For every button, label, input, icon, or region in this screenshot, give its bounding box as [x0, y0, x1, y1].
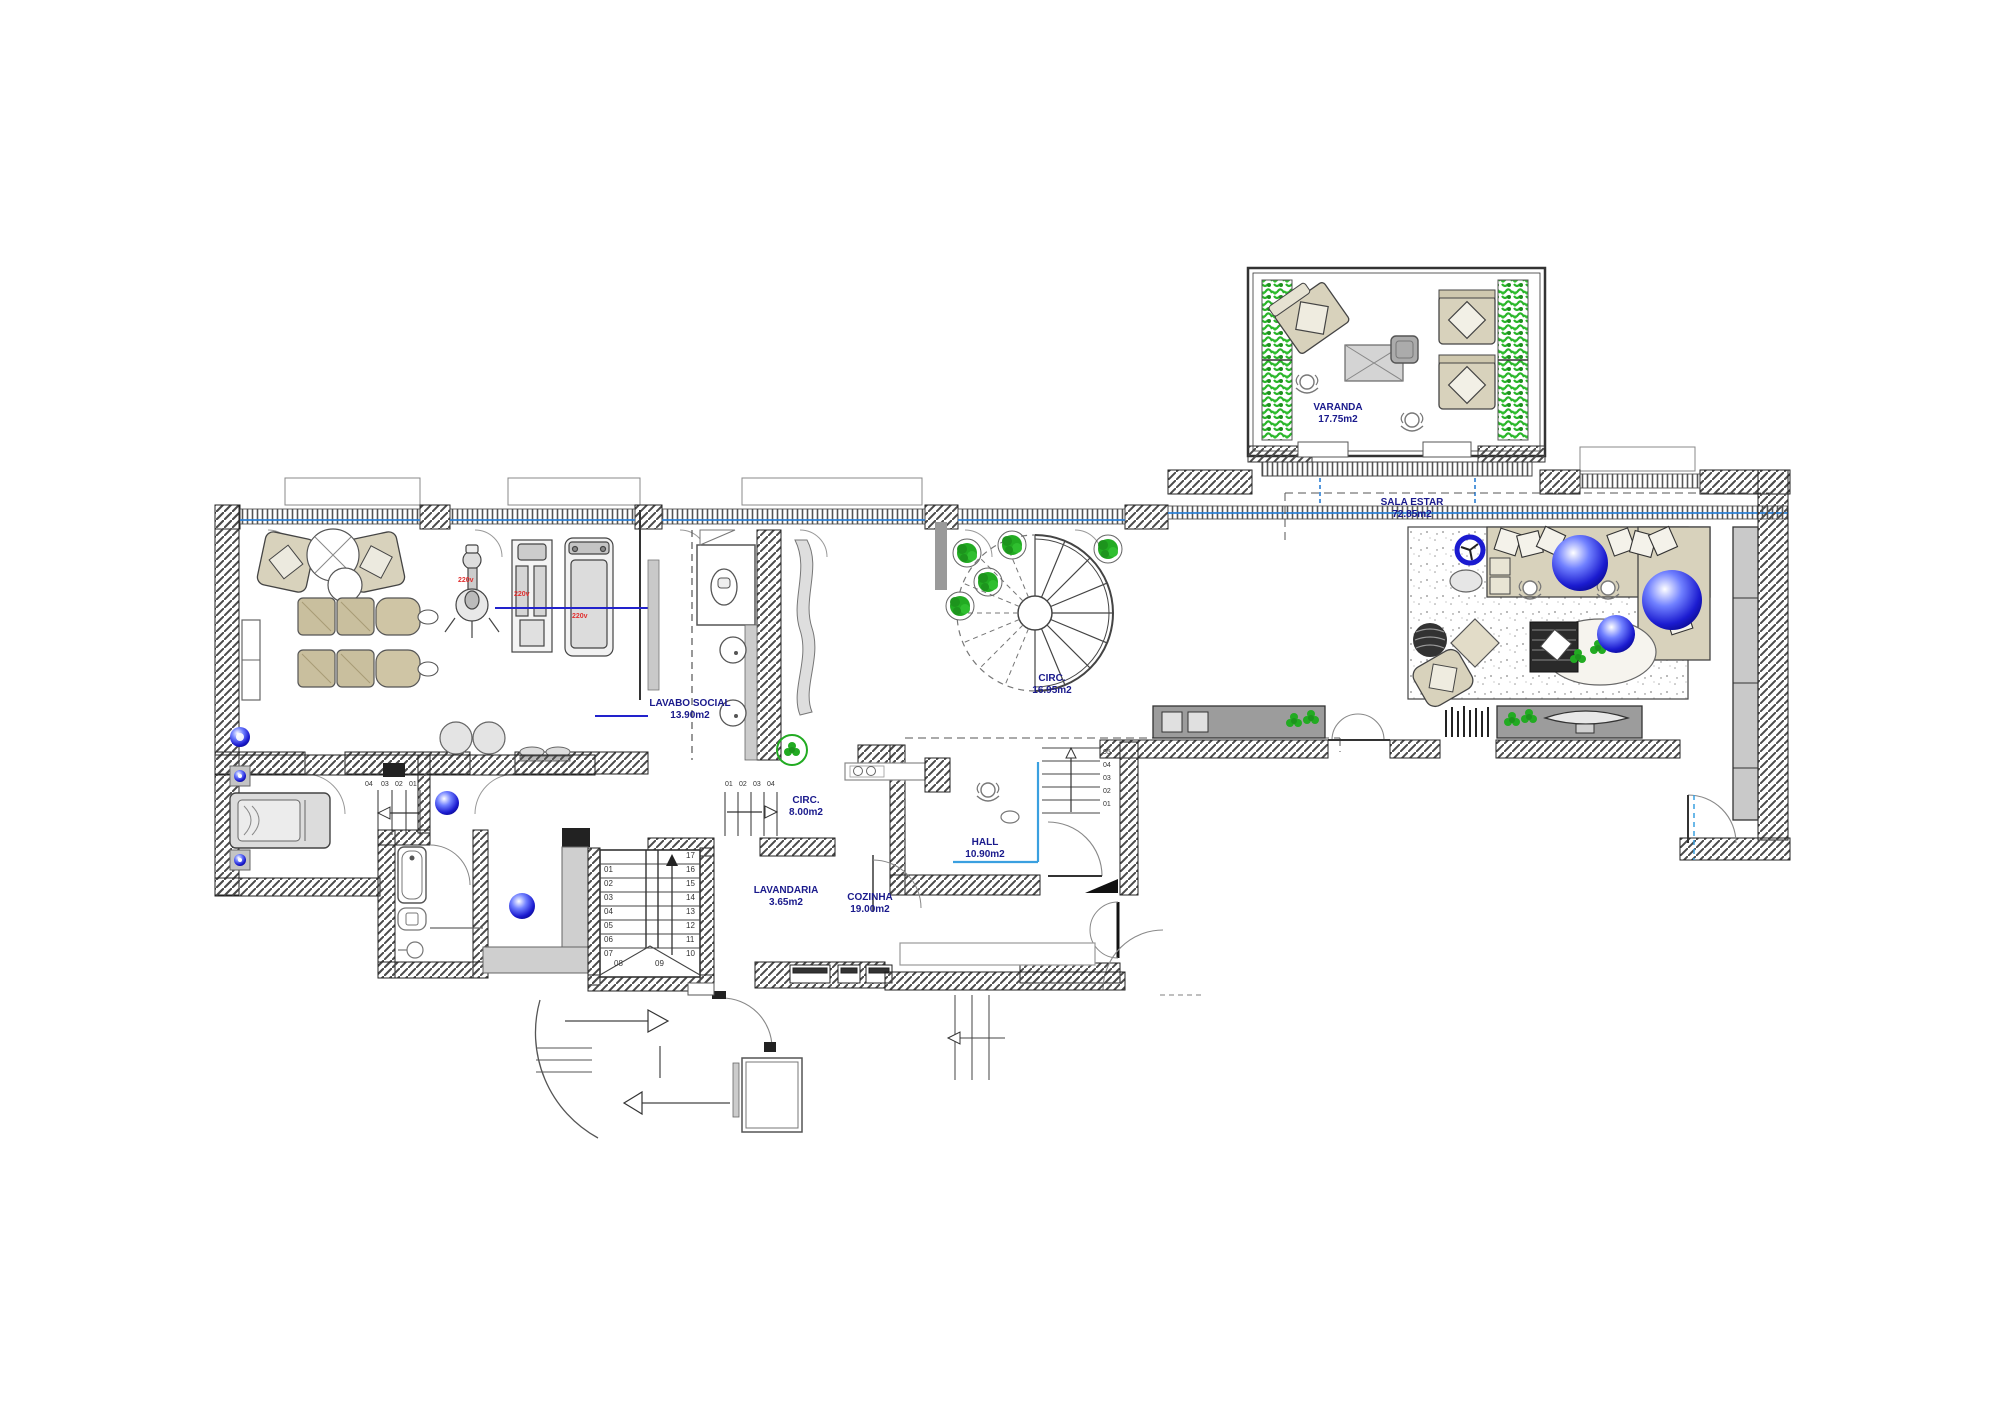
stair-step-number: 02 [1103, 788, 1111, 795]
washbasin [398, 942, 423, 958]
stair-step-number: 01 [725, 781, 733, 788]
room-name: VARANDA [1313, 402, 1362, 414]
room-label-hall: HALL 10.90m2 [965, 837, 1004, 861]
corridor-cabinets [1100, 706, 1680, 758]
stair-step-number: 13 [686, 908, 695, 916]
stair-step-number: 05 [604, 922, 613, 930]
room-area: 10.90m2 [965, 849, 1004, 861]
room-name: HALL [965, 837, 1004, 849]
stair-step-number: 03 [381, 781, 389, 788]
bottom-left-wing [215, 755, 595, 978]
door-swing [305, 774, 515, 814]
chimney-block [383, 763, 405, 777]
balcony-armchair-2 [1439, 355, 1495, 409]
kitchen-laundry [648, 758, 1125, 1080]
room-area: 3.65m2 [754, 897, 819, 909]
window [1580, 474, 1700, 488]
hall-stair [1042, 748, 1100, 813]
circ-spiral-area [858, 522, 1122, 765]
utility-room [483, 828, 590, 973]
plant-icon [974, 568, 1002, 596]
room-area: 13.90m2 [649, 710, 730, 722]
render-sphere-large [1642, 570, 1702, 630]
threshold-ramp [1085, 879, 1118, 893]
exterior-lower [535, 983, 802, 1138]
pillar [935, 522, 947, 590]
room-label-sala-estar: SALA ESTAR 72.85m2 [1381, 497, 1444, 521]
room-label-varanda: VARANDA 17.75m2 [1313, 402, 1362, 426]
stair-step-number: 05 [1103, 749, 1111, 756]
oval-table [1450, 570, 1482, 592]
stair-step-number: 16 [686, 866, 695, 874]
stair-step-number: 01 [1103, 801, 1111, 808]
plant-icon [1094, 535, 1122, 563]
room-area: 8.00m2 [789, 807, 823, 819]
floor-plan-canvas: VARANDA 17.75m2 SALA ESTAR 72.85m2 LAVAB… [0, 0, 2000, 1414]
exterior-stair-down [948, 995, 1005, 1080]
stair-step-number: 01 [604, 866, 613, 874]
lavabo-social [648, 530, 815, 765]
book-row [1446, 706, 1488, 737]
balcony-armchair-1 [1439, 290, 1495, 344]
render-sphere-large [1552, 535, 1608, 591]
room-name: SALA ESTAR [1381, 497, 1444, 509]
stair-step-number: 08 [614, 960, 623, 968]
sideboard-left [1153, 706, 1325, 738]
door-swing [430, 845, 470, 885]
kitchen-counter-low [900, 943, 1095, 965]
room-name: LAVABO SOCIAL [649, 698, 730, 710]
stair-step-number: 04 [1103, 762, 1111, 769]
room-label-lavandaria: LAVANDARIA 3.65m2 [754, 885, 819, 909]
window [450, 509, 635, 524]
laundry-appliances [790, 965, 892, 983]
stair-step-number: 01 [409, 781, 417, 788]
room-name: CIRC. [1032, 673, 1071, 685]
stair-step-number: 02 [604, 880, 613, 888]
stair-step-number: 15 [686, 880, 695, 888]
plant-icon [953, 539, 981, 567]
stair-step-number: 03 [604, 894, 613, 902]
exterior-steps [536, 1048, 592, 1072]
room-name: CIRC. [789, 795, 823, 807]
power-note: 220v [514, 591, 530, 598]
room-label-lavabo: LAVABO SOCIAL 13.90m2 [649, 698, 730, 722]
stair-step-number: 04 [365, 781, 373, 788]
gym-treadmill [565, 538, 613, 656]
room-name: COZINHA [847, 892, 893, 904]
room-name: LAVANDARIA [754, 885, 819, 897]
room-area: 19.00m2 [847, 904, 893, 916]
stair-step-number: 03 [753, 781, 761, 788]
balcony [1248, 268, 1545, 506]
stair-step-number: 10 [686, 950, 695, 958]
render-sphere-small [509, 893, 535, 919]
person-icon [977, 783, 999, 801]
floor-plan-drawing [0, 0, 2000, 1414]
stair-step-number: 04 [604, 908, 613, 916]
chaise-lounger [230, 793, 330, 848]
door-swing [1688, 795, 1736, 843]
flow-arrow-up [648, 1010, 668, 1032]
stair-step-number: 12 [686, 922, 695, 930]
tall-wardrobe [1733, 527, 1758, 820]
power-note: 220v [572, 613, 588, 620]
vanity-counter [745, 625, 757, 760]
stair-step-number: 03 [1103, 775, 1111, 782]
lounge-armchair-1 [256, 530, 316, 593]
dark-pouf [1413, 623, 1447, 657]
toilet [398, 908, 426, 930]
sink [720, 637, 746, 663]
stair-step-number: 17 [686, 852, 695, 860]
room-area: 17.75m2 [1313, 414, 1362, 426]
window-sill [1298, 442, 1348, 457]
gym-bike [445, 545, 499, 638]
stair-step-number: 14 [686, 894, 695, 902]
stair-step-number: 02 [395, 781, 403, 788]
window [662, 509, 925, 524]
stair-step-number: 02 [739, 781, 747, 788]
power-note: 220v [458, 577, 474, 584]
door-swing [722, 998, 772, 1048]
bathroom [378, 830, 488, 978]
room-label-cozinha: COZINHA 19.00m2 [847, 892, 893, 916]
spotlight [230, 766, 250, 786]
plant-icon [998, 531, 1026, 559]
exercise-balls [440, 722, 505, 754]
gate-marker [688, 983, 714, 995]
render-sphere-small [435, 791, 459, 815]
door-swing [1048, 822, 1102, 876]
flow-arrow-down [624, 1092, 642, 1114]
room-label-circ-stair: CIRC. 16.95m2 [1032, 673, 1071, 697]
stair-step-number: 07 [604, 950, 613, 958]
stair-step-number: 09 [655, 960, 664, 968]
stair-step-number: 06 [604, 936, 613, 944]
render-sphere-small [1597, 615, 1635, 653]
plant-icon [946, 592, 974, 620]
window-sill [1423, 442, 1471, 457]
massage-bed-1 [298, 598, 438, 635]
window [240, 509, 420, 524]
stair-step-number: 11 [686, 936, 694, 944]
window [958, 509, 1125, 524]
plant-icon [784, 742, 800, 756]
exterior-cabinet [733, 1058, 802, 1132]
room-area: 16.95m2 [1032, 685, 1071, 697]
sideboard-tv [1497, 706, 1642, 738]
bedroom-steps [378, 790, 420, 835]
stair-step-number: 04 [767, 781, 775, 788]
room-label-circ-corridor: CIRC. 8.00m2 [789, 795, 823, 819]
corridor-steps [725, 792, 777, 836]
massage-bed-2 [298, 650, 438, 687]
feature-wall [795, 540, 815, 715]
living-room [1408, 526, 1710, 710]
room-area: 72.85m2 [1381, 509, 1444, 521]
round-side-tables [307, 529, 362, 602]
double-door [1328, 714, 1390, 740]
spotlight [230, 850, 250, 870]
bathtub [398, 847, 426, 903]
